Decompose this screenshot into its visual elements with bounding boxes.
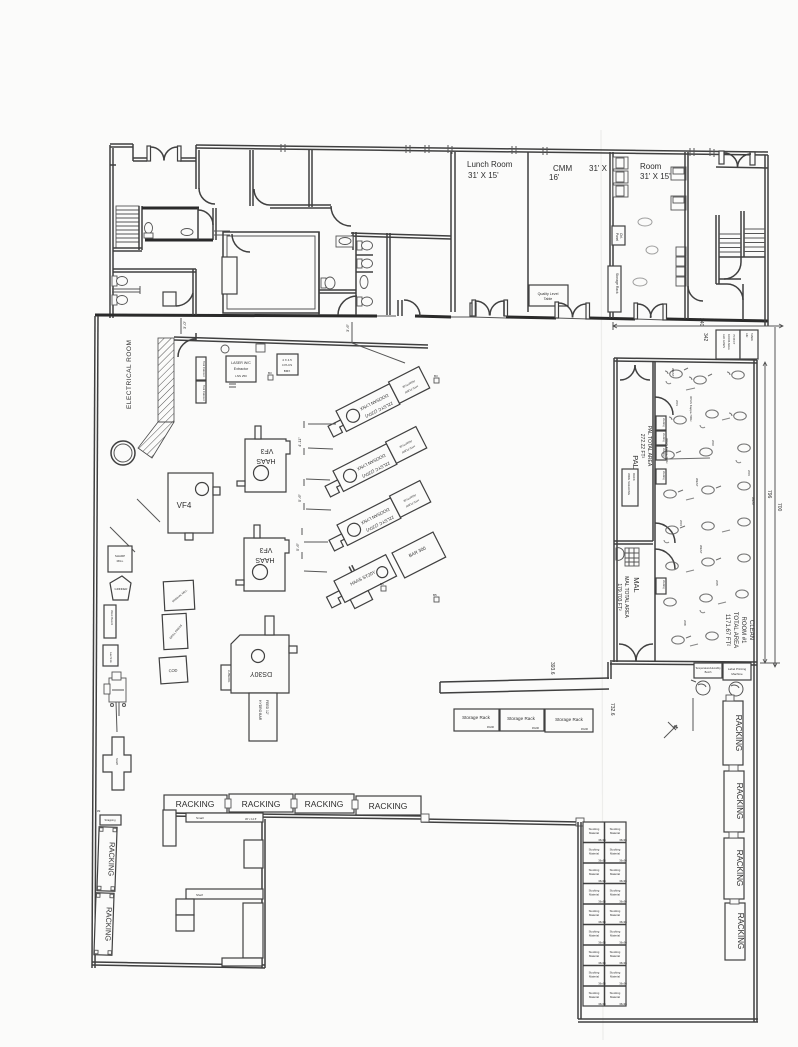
svg-text:732.6: 732.6 — [609, 703, 615, 716]
svg-text:Lunch Room: Lunch Room — [467, 160, 513, 169]
svg-text:Table: Table — [544, 297, 553, 301]
svg-text:RACKING: RACKING — [242, 799, 281, 809]
svg-text:Tool Cabinet: Tool Cabinet — [202, 385, 206, 401]
svg-text:shelving: shelving — [662, 471, 665, 480]
svg-text:2006: 2006 — [683, 620, 687, 626]
svg-text:RACKING: RACKING — [735, 783, 744, 819]
svg-text:5'-6": 5'-6" — [297, 493, 302, 502]
svg-text:Tool Cabinet: Tool Cabinet — [202, 361, 206, 377]
svg-text:PAL TOTAL AREA: PAL TOTAL AREA — [646, 426, 652, 467]
svg-text:MILL: MILL — [117, 559, 124, 563]
svg-text:DS30Y: DS30Y — [250, 670, 273, 677]
svg-text:36x96: 36x96 — [487, 725, 495, 729]
svg-text:LASER W/C: LASER W/C — [231, 361, 251, 365]
svg-text:RACKING: RACKING — [735, 850, 744, 886]
svg-text:36x96: 36x96 — [598, 838, 606, 842]
svg-text:RACKING: RACKING — [305, 799, 344, 809]
svg-text:FEED 12': FEED 12' — [265, 700, 269, 715]
svg-text:2002: 2002 — [711, 440, 715, 446]
svg-text:ROOM #1: ROOM #1 — [740, 616, 746, 644]
svg-text:MAL: MAL — [632, 577, 641, 592]
svg-text:4 X 4.5: 4 X 4.5 — [282, 358, 292, 362]
svg-text:shelving: shelving — [662, 418, 665, 427]
svg-text:WIRE SHELVING: WIRE SHELVING — [627, 473, 631, 495]
svg-text:COD: COD — [168, 668, 177, 674]
svg-text:342: 342 — [702, 333, 708, 342]
svg-text:CMM: CMM — [553, 164, 572, 173]
svg-text:16': 16' — [549, 173, 560, 182]
svg-text:SAW: SAW — [115, 758, 119, 765]
svg-text:5'-6": 5'-6" — [295, 542, 300, 551]
svg-text:240: 240 — [698, 318, 704, 327]
svg-text:36x96: 36x96 — [619, 838, 627, 842]
svg-text:CLEAN: CLEAN — [748, 620, 754, 640]
svg-text:2004: 2004 — [679, 520, 683, 526]
svg-text:31' X 15': 31' X 15' — [640, 172, 671, 181]
svg-text:Storage Rack: Storage Rack — [462, 715, 491, 720]
svg-text:Material: Material — [610, 831, 620, 835]
svg-text:ROOM AREA: ROOM AREA — [727, 334, 731, 350]
svg-text:VF4: VF4 — [177, 501, 192, 510]
svg-text:#9: #9 — [97, 809, 101, 813]
svg-text:2001: 2001 — [675, 400, 679, 406]
svg-text:ELECTRICAL ROOM: ELECTRICAL ROOM — [126, 340, 133, 409]
svg-text:Room: Room — [640, 162, 662, 171]
svg-text:WEST: WEST — [699, 545, 703, 554]
svg-text:VF3: VF3 — [260, 447, 273, 454]
svg-text:393.6: 393.6 — [549, 662, 555, 675]
svg-text:Quality Level: Quality Level — [538, 292, 559, 296]
svg-text:Work Bench: Work Bench — [110, 610, 114, 626]
svg-text:Extractor: Extractor — [234, 367, 249, 371]
svg-text:Strapping: Strapping — [104, 818, 116, 822]
svg-text:796: 796 — [766, 490, 772, 499]
svg-text:Lav Sink: Lav Sink — [109, 652, 113, 663]
svg-text:HYDRO BAR: HYDRO BAR — [258, 700, 262, 721]
svg-text:Label Printing: Label Printing — [728, 667, 747, 671]
svg-text:WEST: WEST — [671, 368, 675, 377]
svg-text:2003: 2003 — [747, 470, 751, 476]
svg-text:36x96: 36x96 — [581, 727, 589, 731]
svg-text:HAAS: HAAS — [255, 556, 274, 563]
svg-text:179.703 FT²: 179.703 FT² — [616, 583, 622, 611]
svg-text:75.58 FT: 75.58 FT — [732, 334, 736, 345]
svg-text:B3: B3 — [268, 371, 272, 375]
svg-text:B5: B5 — [380, 582, 384, 586]
svg-text:AIR: AIR — [745, 333, 749, 337]
svg-text:31' X: 31' X — [589, 164, 608, 173]
svg-text:RACKING: RACKING — [736, 913, 745, 949]
svg-text:shelving: shelving — [662, 580, 665, 589]
svg-text:4 PLCS: 4 PLCS — [282, 363, 292, 367]
svg-text:B3: B3 — [434, 374, 438, 378]
svg-text:2005: 2005 — [715, 580, 719, 586]
svg-text:RACK: RACK — [632, 473, 636, 481]
svg-text:31' X 15': 31' X 15' — [468, 171, 499, 180]
svg-text:GRINDER: GRINDER — [115, 587, 128, 591]
svg-text:MAL TOTAL AREA: MAL TOTAL AREA — [623, 576, 629, 618]
svg-text:RACKING: RACKING — [103, 907, 113, 942]
svg-text:Material: Material — [589, 831, 599, 835]
svg-text:BMX: BMX — [284, 369, 291, 373]
svg-text:VF3: VF3 — [259, 546, 272, 553]
svg-text:Storage Rack: Storage Rack — [507, 716, 536, 721]
svg-text:Shelf: Shelf — [196, 893, 203, 897]
svg-text:HAAS: HAAS — [256, 457, 275, 464]
svg-text:36' x 14.5': 36' x 14.5' — [245, 817, 257, 821]
svg-text:ALD GOWN: ALD GOWN — [722, 334, 726, 348]
svg-text:RACKING: RACKING — [734, 715, 743, 751]
svg-text:PAL: PAL — [631, 455, 640, 469]
svg-text:WEST: WEST — [695, 478, 699, 487]
svg-text:1171.67 FT²: 1171.67 FT² — [724, 614, 730, 646]
svg-text:RACKING: RACKING — [369, 801, 408, 811]
svg-text:TOTAL AREA: TOTAL AREA — [732, 612, 738, 648]
svg-text:Storage Rack: Storage Rack — [615, 273, 619, 294]
svg-text:LNS 250: LNS 250 — [235, 374, 247, 378]
svg-text:Machine: Machine — [731, 672, 743, 676]
svg-text:Booth: Booth — [705, 670, 712, 674]
svg-text:RACKING: RACKING — [106, 842, 116, 877]
svg-text:SHWR: SHWR — [750, 333, 754, 341]
svg-text:SHARP: SHARP — [115, 554, 125, 558]
svg-text:Storage Rack: Storage Rack — [555, 717, 584, 722]
svg-text:WEST: WEST — [751, 497, 755, 506]
svg-text:UPAS Kappa 700H: UPAS Kappa 700H — [689, 396, 693, 421]
svg-text:4'-11": 4'-11" — [297, 437, 302, 447]
svg-text:UPAS Kappa 700H: UPAS Kappa 700H — [665, 438, 669, 463]
svg-text:RACKING: RACKING — [176, 799, 215, 809]
svg-text:700: 700 — [776, 503, 782, 512]
svg-text:3'-6": 3'-6" — [345, 323, 350, 332]
svg-text:Panel: Panel — [615, 233, 619, 241]
svg-text:B5: B5 — [433, 593, 437, 597]
svg-text:36x96: 36x96 — [532, 726, 540, 730]
svg-text:Temperature/Humidity: Temperature/Humidity — [695, 666, 721, 670]
svg-text:3'-0": 3'-0" — [182, 320, 187, 329]
svg-text:shelving: shelving — [662, 433, 665, 442]
svg-text:Small: Small — [196, 816, 204, 820]
